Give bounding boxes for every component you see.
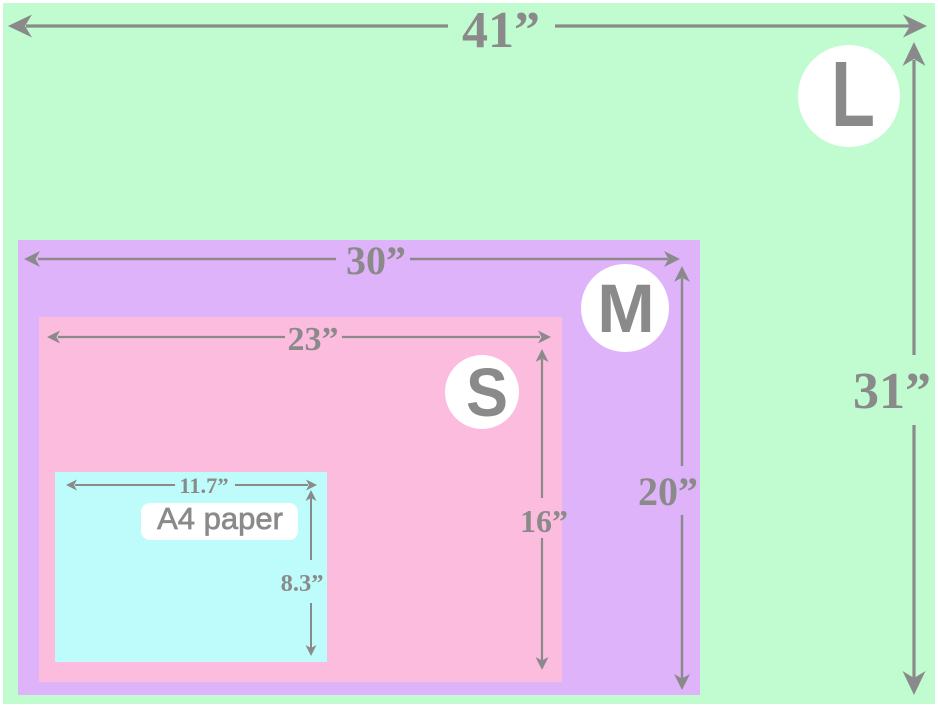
svg-text:16”: 16” [520,503,568,539]
svg-text:L: L [831,42,875,146]
svg-text:41”: 41” [462,2,540,59]
svg-text:8.3”: 8.3” [281,570,324,597]
svg-text:11.7”: 11.7” [179,473,228,498]
svg-text:30”: 30” [346,238,406,283]
svg-text:23”: 23” [288,321,339,358]
svg-text:M: M [597,270,654,347]
svg-text:20”: 20” [638,469,698,514]
svg-text:S: S [466,354,508,431]
svg-text:31”: 31” [853,363,931,420]
svg-text:A4 paper: A4 paper [157,501,283,536]
